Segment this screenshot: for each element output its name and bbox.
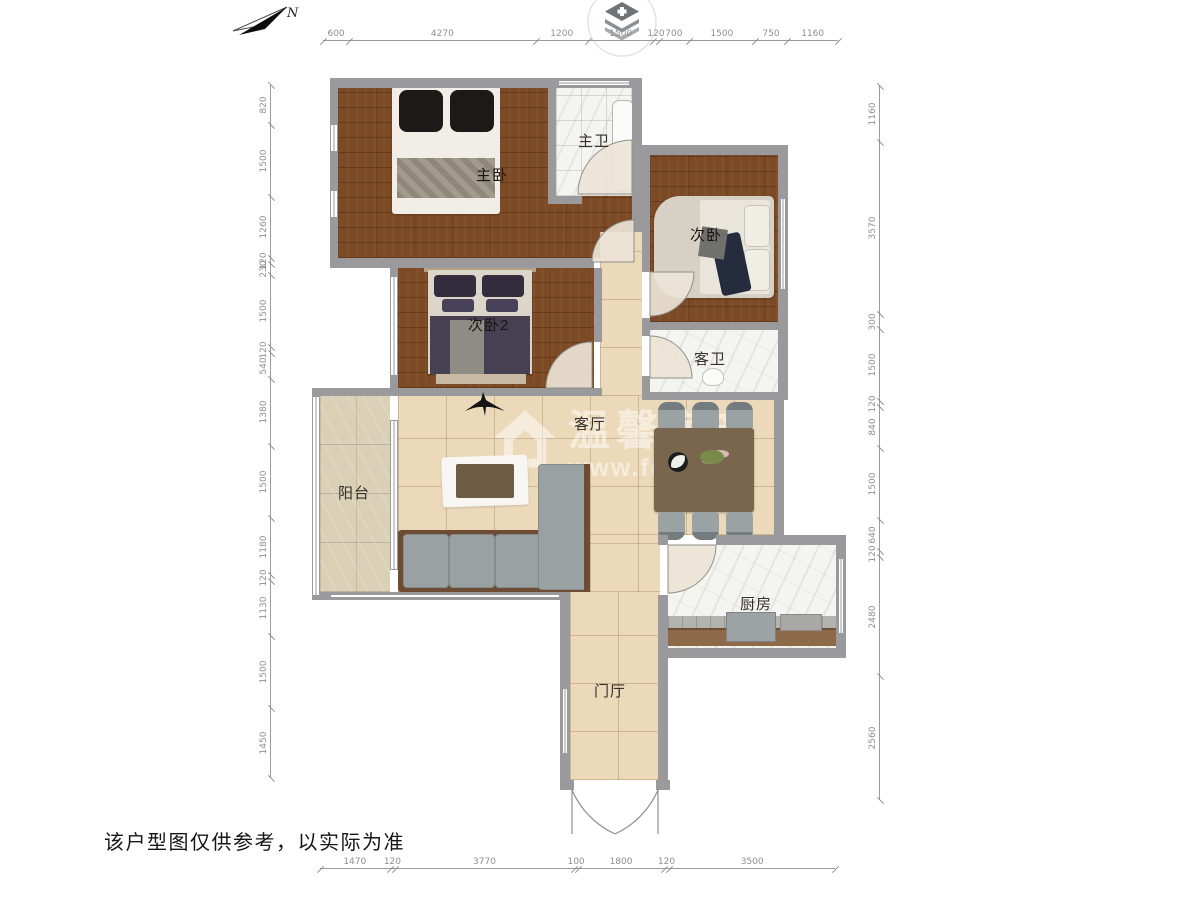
room-label-guest-bath: 客卫 [694, 348, 726, 369]
dim-label: 1260 [259, 216, 269, 239]
dim-label: 640 [868, 527, 878, 544]
dim-label: 3500 [741, 857, 764, 867]
ceiling-fan-icon [464, 390, 506, 418]
kitchen-door [668, 545, 716, 593]
dim-label: 2480 [868, 605, 878, 628]
dim-label: 120 [658, 857, 675, 867]
dim-label: 540 [259, 357, 269, 374]
room-label-balcony: 阳台 [338, 482, 370, 503]
dim-label: 1500 [868, 354, 878, 377]
room-label-bedroom3: 次卧2 [468, 314, 509, 335]
dim-label: 120 [647, 29, 664, 39]
dim-label: 1470 [343, 857, 366, 867]
room-label-kitchen: 厨房 [740, 593, 772, 614]
dim-label: 1800 [610, 857, 633, 867]
guest-bath-door [650, 336, 692, 378]
dim-label: 1160 [801, 29, 824, 39]
dim-label: 1500 [259, 660, 269, 683]
dim-label: 700 [665, 29, 682, 39]
entry-double-door [572, 788, 658, 834]
dim-label: 1500 [868, 472, 878, 495]
dimension-line-bottom: 1470120377010018001203500 [320, 868, 835, 869]
bedroom2-door [650, 272, 694, 316]
master-bedroom-door [592, 220, 634, 262]
dim-label: 750 [762, 29, 779, 39]
dim-label: 1130 [259, 597, 269, 620]
dim-label: 840 [868, 419, 878, 436]
floor-plan: N 60042701200150012070015007501160 14701… [0, 0, 1200, 900]
dim-label: 1500 [609, 29, 632, 39]
room-label-master-bath: 主卫 [578, 130, 610, 151]
dim-label: 3570 [868, 217, 878, 240]
dim-label: 1500 [259, 300, 269, 323]
dim-label: 1180 [259, 535, 269, 558]
disclaimer-text: 该户型图仅供参考，以实际为准 [104, 826, 405, 855]
dim-label: 1450 [259, 732, 269, 755]
dim-label: 120 [259, 569, 269, 586]
dim-label: 1500 [259, 471, 269, 494]
dim-label: 820 [259, 96, 269, 113]
dim-label: 230 [259, 261, 269, 278]
dimension-line-right: 116035703001500120840150064012024802560 [879, 86, 880, 800]
dim-label: 600 [327, 29, 344, 39]
dimension-line-left: 8201500126012023015001205401380150011801… [270, 85, 271, 778]
dim-label: 3770 [473, 857, 496, 867]
dim-label: 1200 [550, 29, 573, 39]
dim-label: 120 [259, 342, 269, 359]
dim-label: 120 [868, 396, 878, 413]
dimension-line-top: 60042701200150012070015007501160 [323, 40, 838, 41]
dim-label: 300 [868, 313, 878, 330]
room-label-master-bedroom: 主卧 [476, 164, 508, 185]
compass-north-icon: N [225, 0, 303, 42]
room-label-bedroom2: 次卧 [690, 224, 722, 245]
dim-label: 1380 [259, 401, 269, 424]
dim-label: 100 [567, 857, 584, 867]
dim-label: 120 [384, 857, 401, 867]
room-label-foyer: 门厅 [594, 680, 626, 701]
room-label-living-room: 客厅 [574, 413, 606, 434]
dim-label: 4270 [431, 29, 454, 39]
bedroom3-door [546, 342, 592, 388]
dim-label: 120 [868, 545, 878, 562]
dim-label: 1500 [259, 149, 269, 172]
compass-label: N [286, 6, 299, 21]
dim-label: 1160 [868, 103, 878, 126]
dim-label: 1500 [710, 29, 733, 39]
dim-label: 2560 [868, 727, 878, 750]
